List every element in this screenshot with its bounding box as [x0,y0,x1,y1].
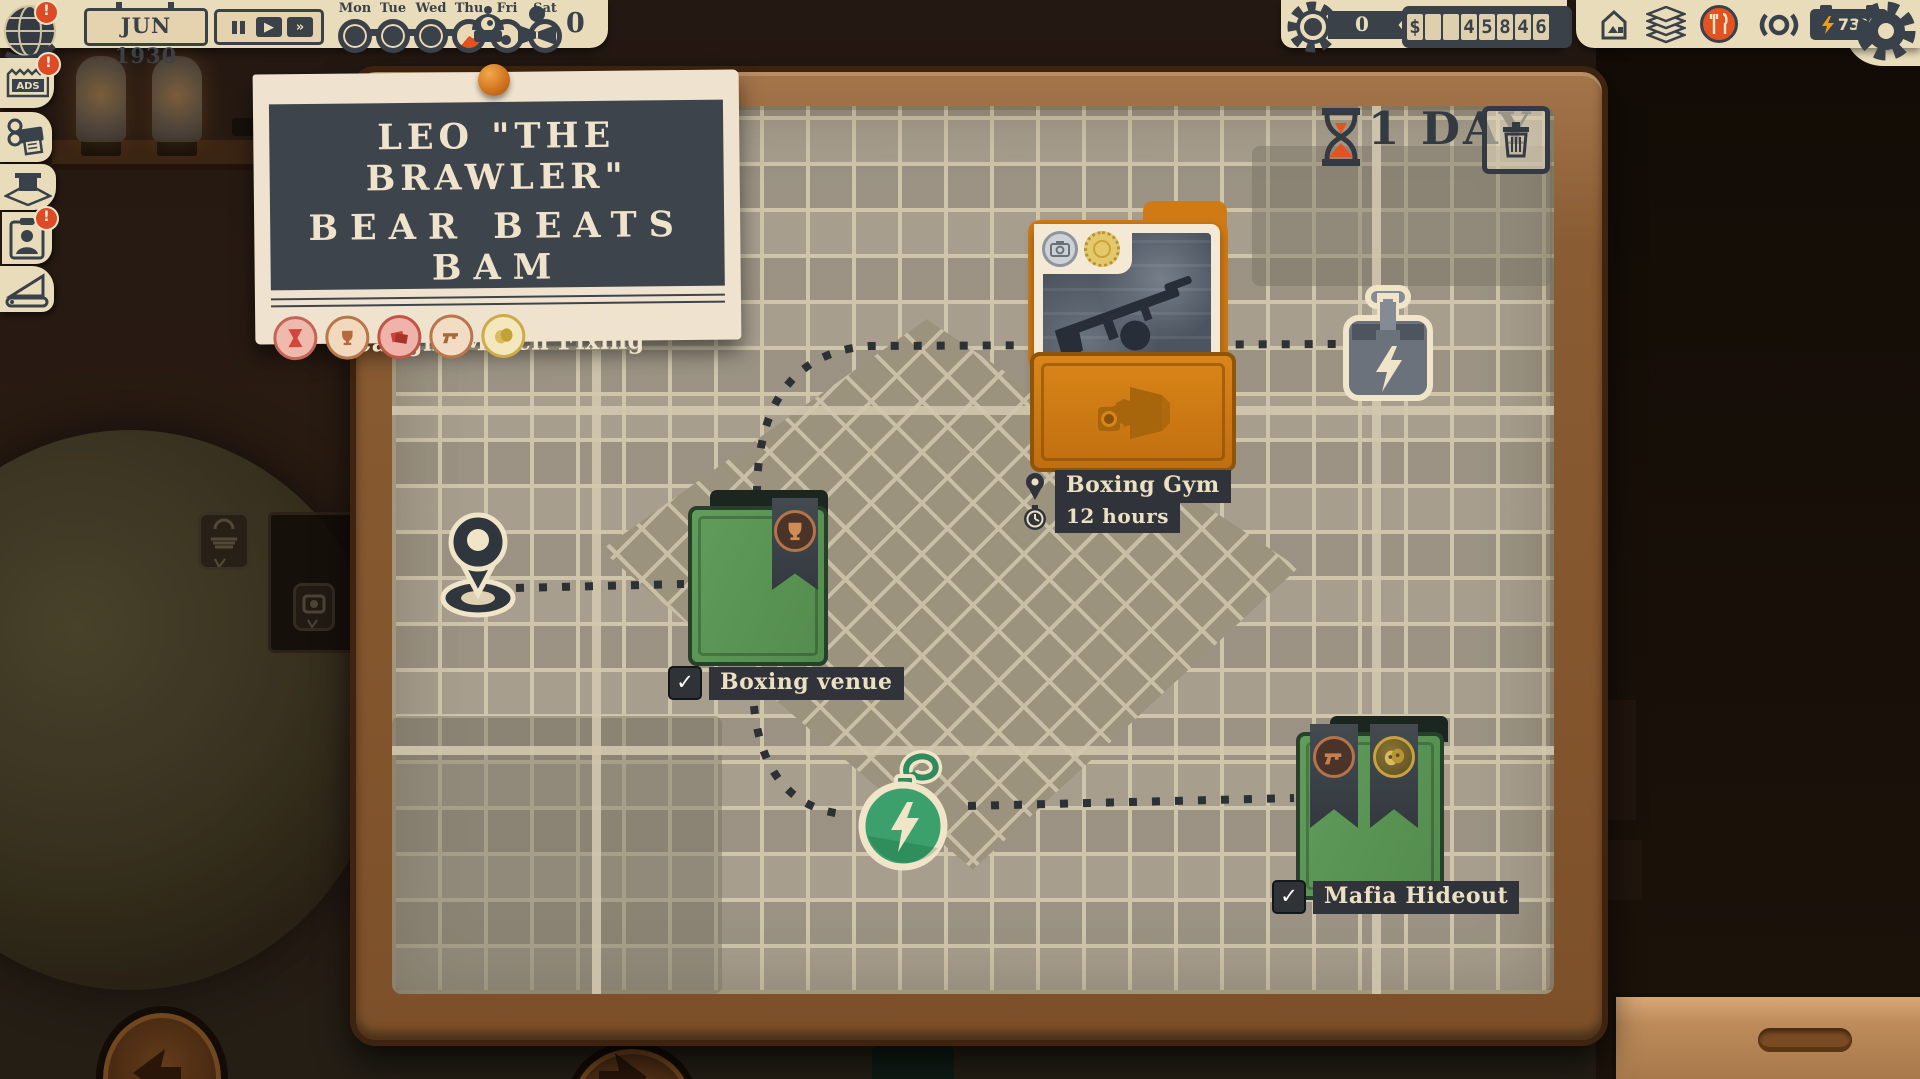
boxing-venue-label-row: ✓ Boxing venue [668,666,904,700]
nav-left-button[interactable] [96,1006,228,1079]
game-screen: 1 DAY ✓ Boxing venue [0,0,1920,1079]
lightning-icon [1822,16,1834,34]
deadline-bell-icon[interactable] [466,4,512,48]
mask-medal-icon [1373,736,1415,778]
date-display: JUN 1930 [84,8,208,46]
checkmark-box: ✓ [1272,880,1306,914]
reader-icon [514,5,562,47]
boxing-gym-label-row: Boxing Gym [1022,470,1231,503]
story-tag-badges [273,314,525,361]
stop-label-boxing-gym: Boxing Gym [1055,470,1231,503]
money-counter: $ 4 5 8 4 6 [1402,6,1572,48]
tickets-tag-icon [377,315,421,359]
sidebar-item-blueprint[interactable] [0,266,54,312]
nav-right-button[interactable] [566,1042,698,1079]
duration-label: 12 hours [1055,502,1180,533]
globe-speech-bubble [198,512,250,570]
checkmark-box: ✓ [668,666,702,700]
stop-label-mafia-hideout: Mafia Hideout [1313,881,1519,914]
folder-front [1030,352,1236,472]
day-tue[interactable]: Tue [374,1,412,48]
newspaper-clipping[interactable]: LEO "THE BRAWLER" BEAR BEATS BAM Denver'… [253,69,742,344]
play-button[interactable]: ▶ [256,17,282,37]
sidebar-item-printing-press[interactable] [0,112,52,162]
money-digit: 8 [1497,14,1513,40]
radio-tube [76,56,126,156]
headline-panel: LEO "THE BRAWLER" BEAR BEATS BAM Denver'… [269,100,725,291]
trophy-tag-icon [325,315,369,359]
mafia-hideout-label-row: ✓ Mafia Hideout [1272,880,1519,914]
money-digit [1425,14,1441,40]
floors-layers-icon[interactable] [1646,6,1686,44]
day-wed[interactable]: Wed [412,1,450,48]
money-digit: $ [1407,14,1423,40]
money-digit: 4 [1515,14,1531,40]
money-digit: 6 [1533,14,1549,40]
settings-gear-button[interactable] [1854,0,1918,64]
revolver-medal-icon [1313,736,1355,778]
ads-alert-badge: ! [36,52,61,77]
readers-count: 0 [566,8,585,39]
gold-rosette-badge-icon [1084,231,1120,267]
money-digit: 4 [1461,14,1477,40]
headline-line2: BEAR BEATS BAM [270,204,725,291]
hourglass-tag-icon [273,316,317,360]
route-start-pin [430,508,526,622]
rosette-icon [1285,0,1341,56]
headline-line1: LEO "THE BRAWLER" [269,114,724,201]
food-service-icon[interactable] [1700,5,1738,43]
pause-button[interactable] [225,17,251,37]
radio-tube [152,56,202,156]
timer-hourglass-icon [1320,108,1362,166]
right-wall [1596,0,1920,1079]
location-pin-icon [1022,472,1048,502]
bomb-event-icon[interactable] [844,750,964,872]
masks-tag-icon [481,314,525,358]
staff-alert-badge: ! [34,206,59,231]
camera-icon [1096,381,1170,443]
desk-object [872,1042,954,1079]
globe-alert-badge: ! [34,0,59,25]
money-digit [1443,14,1459,40]
camera-badge-icon [1042,231,1078,267]
trophy-medal-icon [774,510,816,552]
boxing-gym-duration-row: 12 hours [1022,502,1180,533]
money-digit: 5 [1479,14,1495,40]
clock-icon [1022,505,1048,531]
svg-text:ADS: ADS [16,81,39,92]
weight-event-icon[interactable] [1334,284,1442,404]
delete-route-button[interactable] [1482,106,1550,174]
drawer-handle[interactable] [1758,1028,1852,1052]
day-mon[interactable]: Mon [336,1,374,48]
stop-boxing-gym-folder[interactable] [1024,198,1234,468]
sidebar-item-building-map[interactable] [0,164,56,210]
stop-label-boxing-venue: Boxing venue [709,667,904,700]
fast-forward-button[interactable]: » [287,17,313,37]
building-icon[interactable] [1596,9,1632,41]
pushpin [478,64,510,96]
visibility-eye-icon[interactable] [1756,13,1802,37]
camera-speech-bubble [293,583,335,631]
playback-controls: ▶ » [214,9,324,45]
revolver-tag-icon [429,314,473,358]
